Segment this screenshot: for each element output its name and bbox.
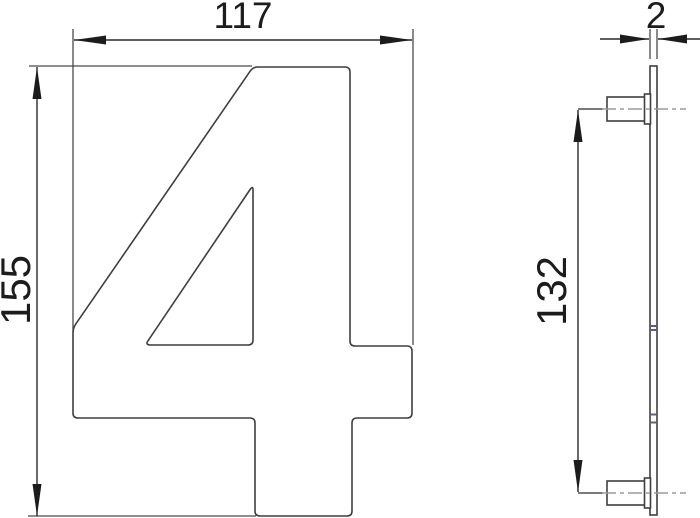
stud-centerlines (578, 109, 686, 493)
stud-spacing-arrow-bottom-icon (574, 460, 583, 492)
numeral-4-counter-outline (147, 188, 253, 345)
numeral-4-outer-outline (73, 67, 412, 516)
width-dimension-label: 117 (214, 0, 273, 36)
stud-spacing-arrow-top-icon (574, 110, 583, 142)
width-arrow-left-icon (74, 36, 106, 45)
technical-drawing: 117 155 (0, 0, 700, 518)
stud-spacing-dimension: 132 (528, 110, 583, 492)
height-dimension: 155 (0, 66, 256, 516)
thickness-arrow-left-icon (620, 35, 649, 44)
height-dimension-label: 155 (0, 255, 39, 325)
height-arrow-bottom-icon (33, 484, 42, 516)
numeral-4 (73, 67, 412, 516)
width-dimension: 117 (73, 0, 413, 345)
stud-spacing-dimension-label: 132 (528, 256, 575, 326)
height-arrow-top-icon (33, 67, 42, 99)
front-view: 117 155 (0, 0, 413, 516)
plate-profile (650, 66, 657, 515)
thickness-dimension-label: 2 (646, 0, 667, 36)
side-view: 2 (528, 0, 700, 515)
drawing-canvas: 117 155 (0, 0, 700, 518)
thickness-dimension: 2 (600, 0, 700, 59)
width-arrow-right-icon (380, 36, 412, 45)
